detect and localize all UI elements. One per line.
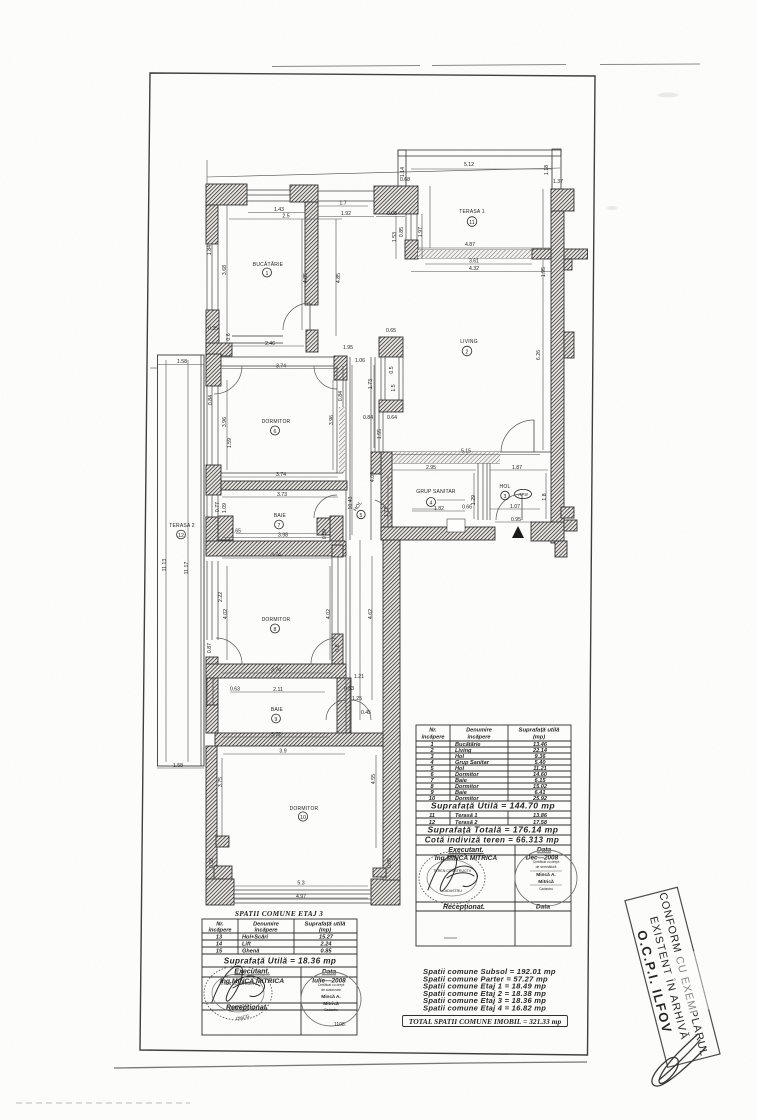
svg-text:2.24: 2.24 <box>320 942 333 948</box>
svg-text:3.73: 3.73 <box>277 492 287 498</box>
svg-text:1.37: 1.37 <box>553 179 563 185</box>
svg-text:2.5: 2.5 <box>282 214 289 220</box>
svg-text:HOL: HOL <box>500 484 511 490</box>
svg-text:15: 15 <box>216 949 223 955</box>
svg-text:0.65: 0.65 <box>387 858 393 868</box>
svg-text:10: 10 <box>300 815 306 821</box>
svg-text:1.5: 1.5 <box>391 384 397 391</box>
svg-text:11: 11 <box>429 813 435 819</box>
svg-text:4.09: 4.09 <box>370 472 376 482</box>
svg-text:încăpere: încăpere <box>208 928 231 934</box>
svg-text:4.85: 4.85 <box>336 273 342 283</box>
svg-text:2: 2 <box>466 349 469 355</box>
svg-text:9: 9 <box>275 717 278 723</box>
svg-text:Suprafață utilă: Suprafață utilă <box>519 728 561 734</box>
svg-text:(mp): (mp) <box>533 735 545 741</box>
svg-text:4.85: 4.85 <box>303 273 309 283</box>
svg-text:1.73: 1.73 <box>368 379 374 389</box>
svg-text:Ghenă: Ghenă <box>242 949 260 955</box>
svg-text:3.74: 3.74 <box>271 668 281 674</box>
svg-text:Cadastru: Cadastru <box>324 1008 338 1012</box>
svg-text:5.15: 5.15 <box>461 449 471 455</box>
svg-text:0.63: 0.63 <box>230 687 240 693</box>
svg-text:TERASA 2: TERASA 2 <box>169 523 195 529</box>
svg-text:3.74: 3.74 <box>271 553 281 559</box>
svg-text:7: 7 <box>278 523 281 529</box>
svg-text:3.96: 3.96 <box>222 417 228 427</box>
svg-text:Executant.: Executant. <box>448 847 483 854</box>
svg-text:GRUP SANITAR: GRUP SANITAR <box>416 489 456 495</box>
svg-text:1.65: 1.65 <box>231 529 241 535</box>
svg-text:Mincă A.: Mincă A. <box>321 994 341 1000</box>
svg-text:4.62: 4.62 <box>368 609 374 619</box>
svg-text:13: 13 <box>216 935 223 941</box>
svg-text:5.3: 5.3 <box>297 881 304 887</box>
svg-text:6.26: 6.26 <box>536 350 542 360</box>
svg-text:Lift: Lift <box>242 942 252 948</box>
svg-text:6: 6 <box>274 429 277 435</box>
svg-text:DORMITOR: DORMITOR <box>262 617 291 623</box>
svg-text:încăpere: încăpere <box>421 735 444 741</box>
svg-text:1.25: 1.25 <box>352 696 362 702</box>
svg-text:0.84: 0.84 <box>363 415 373 421</box>
svg-text:0.84: 0.84 <box>338 391 344 401</box>
svg-text:de semnătură: de semnătură <box>536 865 557 869</box>
svg-text:Data: Data <box>536 904 551 911</box>
svg-text:Cadastru: Cadastru <box>539 887 553 891</box>
svg-text:12: 12 <box>178 533 184 539</box>
svg-text:0.56: 0.56 <box>209 858 215 868</box>
svg-text:Terasă 1: Terasă 1 <box>455 813 478 819</box>
svg-text:14: 14 <box>216 942 223 948</box>
svg-text:0.84: 0.84 <box>208 395 214 405</box>
svg-text:Suprafață Totală = 176.14 m: Suprafață Totală = 176.14 mp <box>428 825 559 835</box>
svg-text:1.53: 1.53 <box>392 232 398 242</box>
svg-text:2.22: 2.22 <box>218 592 224 602</box>
svg-text:BUCĂTĂRIE: BUCĂTĂRIE <box>253 261 284 268</box>
svg-text:1.7: 1.7 <box>339 201 346 207</box>
svg-text:2.11: 2.11 <box>273 687 283 693</box>
svg-text:4: 4 <box>430 500 433 506</box>
svg-text:4.55: 4.55 <box>371 774 377 784</box>
svg-text:0.8: 0.8 <box>335 644 341 651</box>
svg-text:Mitrică: Mitrică <box>323 1001 339 1007</box>
svg-text:BAIE: BAIE <box>274 513 287 519</box>
svg-text:1.59: 1.59 <box>227 438 233 448</box>
svg-text:2.46: 2.46 <box>265 341 275 347</box>
svg-text:Executant.: Executant. <box>234 969 269 976</box>
svg-text:1.21: 1.21 <box>354 674 364 680</box>
svg-text:11.17: 11.17 <box>184 562 190 575</box>
svg-text:5: 5 <box>360 513 363 519</box>
svg-text:0.83: 0.83 <box>344 686 354 692</box>
svg-text:5.12: 5.12 <box>464 162 474 168</box>
svg-text:3.61: 3.61 <box>469 259 479 265</box>
svg-text:1.55: 1.55 <box>377 429 383 439</box>
svg-text:4.02: 4.02 <box>223 609 229 619</box>
svg-text:11.13: 11.13 <box>162 559 168 572</box>
svg-text:1.95: 1.95 <box>343 345 353 351</box>
svg-text:încăpere: încăpere <box>467 735 490 741</box>
svg-text:1.09: 1.09 <box>222 503 228 513</box>
svg-text:Suprafață Utilă = 18.36 mp: Suprafață Utilă = 18.36 mp <box>224 957 337 966</box>
svg-text:0.85: 0.85 <box>399 227 405 237</box>
svg-text:1.18: 1.18 <box>544 165 550 175</box>
svg-text:3.68: 3.68 <box>222 265 228 275</box>
svg-text:1.07: 1.07 <box>510 504 520 510</box>
svg-text:13.86: 13.86 <box>533 813 548 819</box>
svg-text:DORMITOR: DORMITOR <box>262 419 291 425</box>
svg-text:1.58: 1.58 <box>173 763 183 769</box>
svg-text:de autorizare: de autorizare <box>321 988 341 992</box>
svg-text:Spatii comune Etaj 4 = 16: Spatii comune Etaj 4 = 16.82 mp <box>423 1004 546 1013</box>
svg-text:1.29: 1.29 <box>471 495 477 505</box>
svg-text:0.5: 0.5 <box>389 366 395 373</box>
svg-text:4.87: 4.87 <box>465 242 475 248</box>
svg-text:DORMITOR: DORMITOR <box>290 806 319 812</box>
svg-text:4.02: 4.02 <box>326 609 332 619</box>
svg-text:1.87: 1.87 <box>512 465 522 471</box>
svg-text:0.85: 0.85 <box>321 949 333 955</box>
svg-text:Hol+Scări: Hol+Scări <box>242 935 268 941</box>
svg-text:0.77: 0.77 <box>215 502 221 512</box>
svg-text:Mitrică: Mitrică <box>538 879 554 885</box>
svg-text:Nr.: Nr. <box>429 728 437 734</box>
svg-text:Mincă A.: Mincă A. <box>536 872 556 878</box>
svg-text:3.74: 3.74 <box>276 364 286 370</box>
svg-text:0.45: 0.45 <box>361 710 371 716</box>
svg-text:2.95: 2.95 <box>426 465 436 471</box>
svg-text:1.06: 1.06 <box>355 358 365 364</box>
svg-text:1.43: 1.43 <box>274 207 284 213</box>
svg-text:0.6: 0.6 <box>226 333 232 340</box>
svg-text:3.98: 3.98 <box>278 533 288 539</box>
svg-text:BAIE: BAIE <box>271 707 284 713</box>
svg-text:1.84: 1.84 <box>207 245 213 255</box>
svg-text:Certificat cu drept: Certificat cu drept <box>533 860 560 864</box>
svg-text:1.92: 1.92 <box>341 211 351 217</box>
svg-text:3.75: 3.75 <box>218 777 224 787</box>
svg-text:Denumire: Denumire <box>466 728 492 734</box>
svg-text:11: 11 <box>469 220 474 226</box>
svg-text:0.65: 0.65 <box>386 328 396 334</box>
svg-text:SPATII COMUNE ETAJ 3: SPATII COMUNE ETAJ 3 <box>235 909 323 918</box>
svg-text:0.95: 0.95 <box>511 517 521 523</box>
svg-text:8: 8 <box>274 627 277 633</box>
svg-text:0.87: 0.87 <box>207 643 213 653</box>
svg-text:TERASA 1: TERASA 1 <box>459 209 485 215</box>
svg-text:1.77: 1.77 <box>384 507 390 517</box>
svg-text:1108.: 1108. <box>334 1022 346 1028</box>
svg-text:0.59: 0.59 <box>322 529 328 539</box>
svg-text:0.08: 0.08 <box>387 211 397 217</box>
svg-text:1: 1 <box>266 271 269 277</box>
svg-text:3: 3 <box>504 494 507 500</box>
svg-text:(mp): (mp) <box>319 928 331 934</box>
svg-text:4.32: 4.32 <box>469 266 479 272</box>
svg-text:CADASTRU: CADASTRU <box>442 889 462 893</box>
svg-text:1.58: 1.58 <box>177 359 187 365</box>
svg-text:1.14: 1.14 <box>400 167 406 177</box>
svg-text:0.64: 0.64 <box>387 415 397 421</box>
svg-text:0.68: 0.68 <box>400 177 410 183</box>
svg-text:LIVING: LIVING <box>460 339 478 345</box>
svg-text:3.72: 3.72 <box>271 732 281 738</box>
svg-text:3.74: 3.74 <box>276 472 286 478</box>
svg-text:Cotă indiviză teren = 66.313: Cotă indiviză teren = 66.313 mp <box>425 836 559 845</box>
svg-text:1.82: 1.82 <box>434 506 444 512</box>
svg-text:0.35: 0.35 <box>208 326 218 332</box>
svg-text:Recepționat.: Recepționat. <box>443 904 485 911</box>
svg-text:încăpere: încăpere <box>254 928 277 934</box>
svg-text:Certificat cu drept: Certificat cu drept <box>318 983 345 987</box>
svg-text:1.97: 1.97 <box>418 227 424 237</box>
svg-text:3.96: 3.96 <box>329 415 335 425</box>
svg-text:15.27: 15.27 <box>319 935 334 941</box>
svg-text:1.95: 1.95 <box>541 267 547 277</box>
svg-text:TOTAL SPATII COMUNE IMOBIL =: TOTAL SPATII COMUNE IMOBIL = 321.33 mp <box>409 1017 562 1026</box>
svg-text:3.9: 3.9 <box>279 749 286 755</box>
svg-text:Suprafață Utilă = 144.70 mp: Suprafață Utilă = 144.70 mp <box>431 801 555 811</box>
svg-text:1.8: 1.8 <box>542 493 548 500</box>
svg-text:AP.8: AP.8 <box>517 492 528 497</box>
svg-text:4.97: 4.97 <box>296 894 306 900</box>
